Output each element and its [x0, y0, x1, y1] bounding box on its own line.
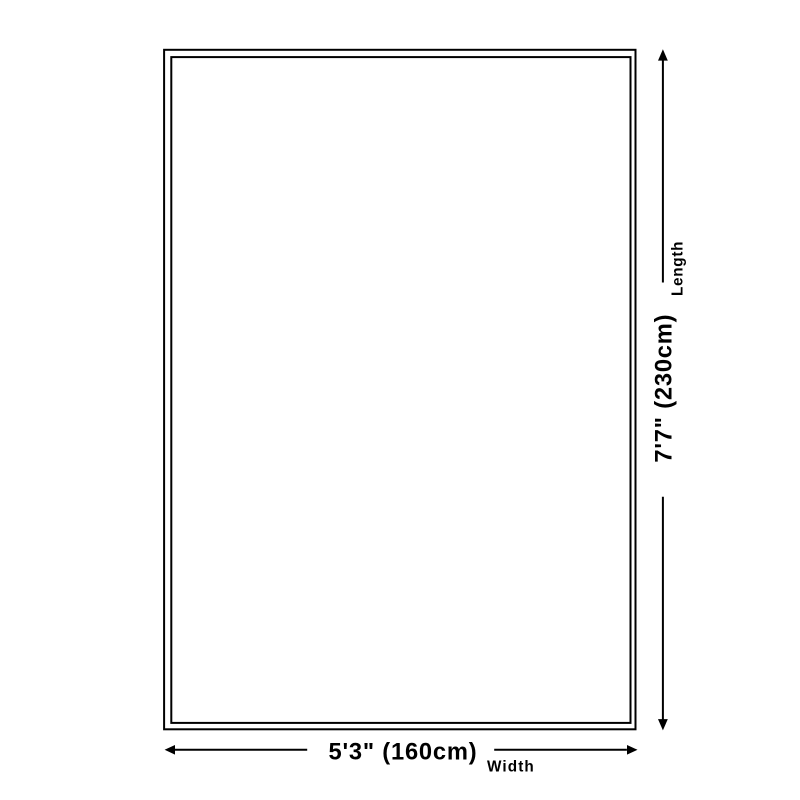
svg-text:Width: Width	[487, 759, 535, 776]
svg-text:Length: Length	[670, 241, 687, 296]
svg-text:7'7" (230cm): 7'7" (230cm)	[652, 314, 678, 463]
svg-text:5'3" (160cm): 5'3" (160cm)	[329, 739, 478, 765]
